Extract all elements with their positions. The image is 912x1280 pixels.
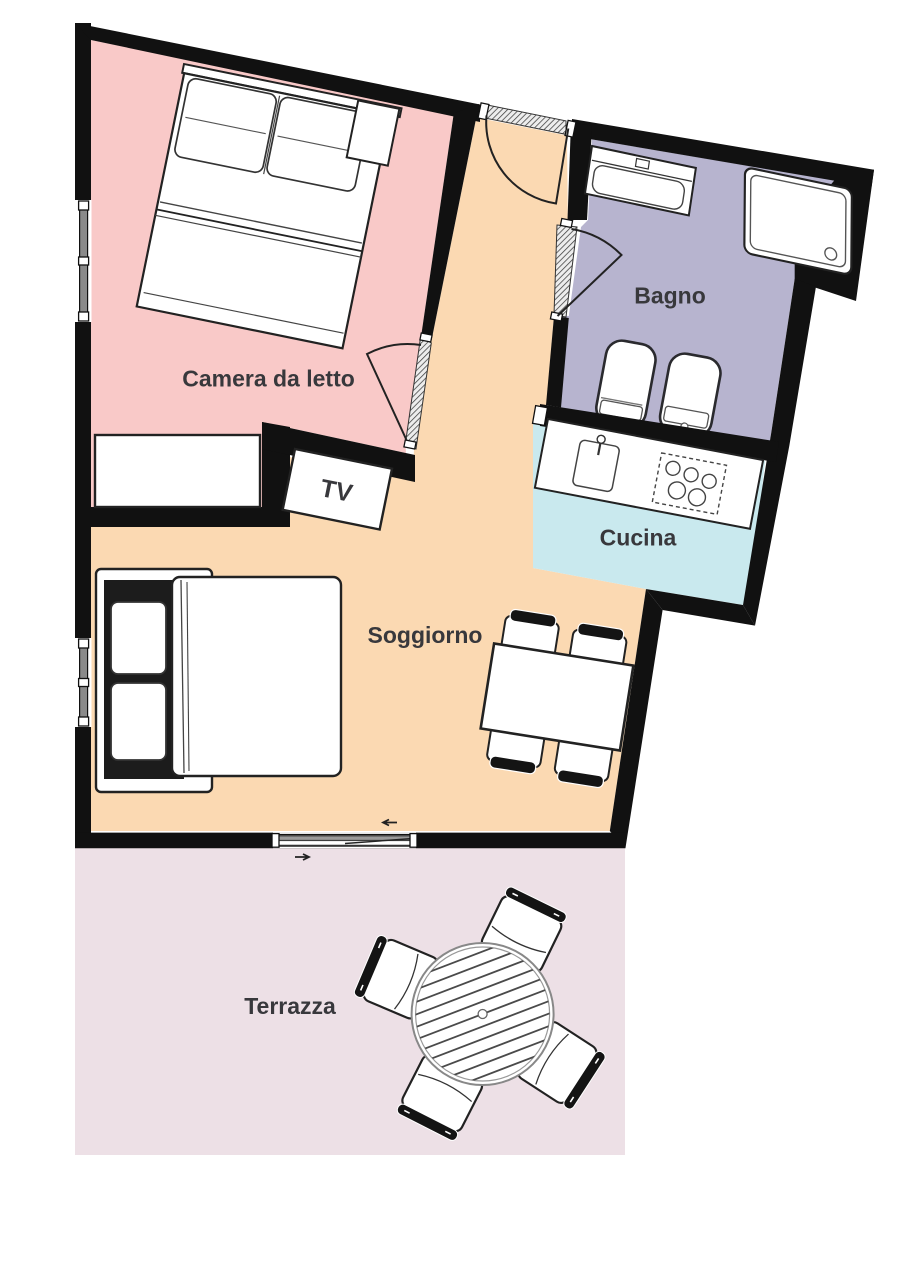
svg-text:Soggiorno: Soggiorno xyxy=(368,622,483,648)
svg-text:Bagno: Bagno xyxy=(634,283,706,309)
svg-text:Camera da letto: Camera da letto xyxy=(182,366,355,392)
svg-text:Terrazza: Terrazza xyxy=(244,993,336,1019)
svg-text:Cucina: Cucina xyxy=(600,525,677,551)
